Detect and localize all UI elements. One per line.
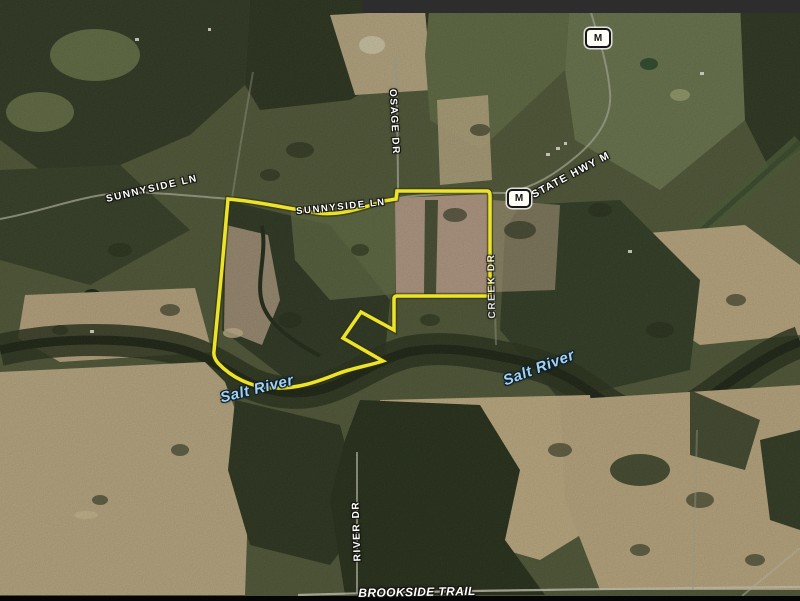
highway-m-shield-mid: M xyxy=(507,189,531,208)
satellite-imagery xyxy=(0,0,800,601)
highway-m-shield-top: M xyxy=(585,28,611,48)
top-letterbox-bar xyxy=(362,0,800,13)
map-canvas[interactable]: SUNNYSIDE LN SUNNYSIDE LN OSAGE DR STATE… xyxy=(0,0,800,601)
bottom-letterbox-bar xyxy=(0,596,800,601)
